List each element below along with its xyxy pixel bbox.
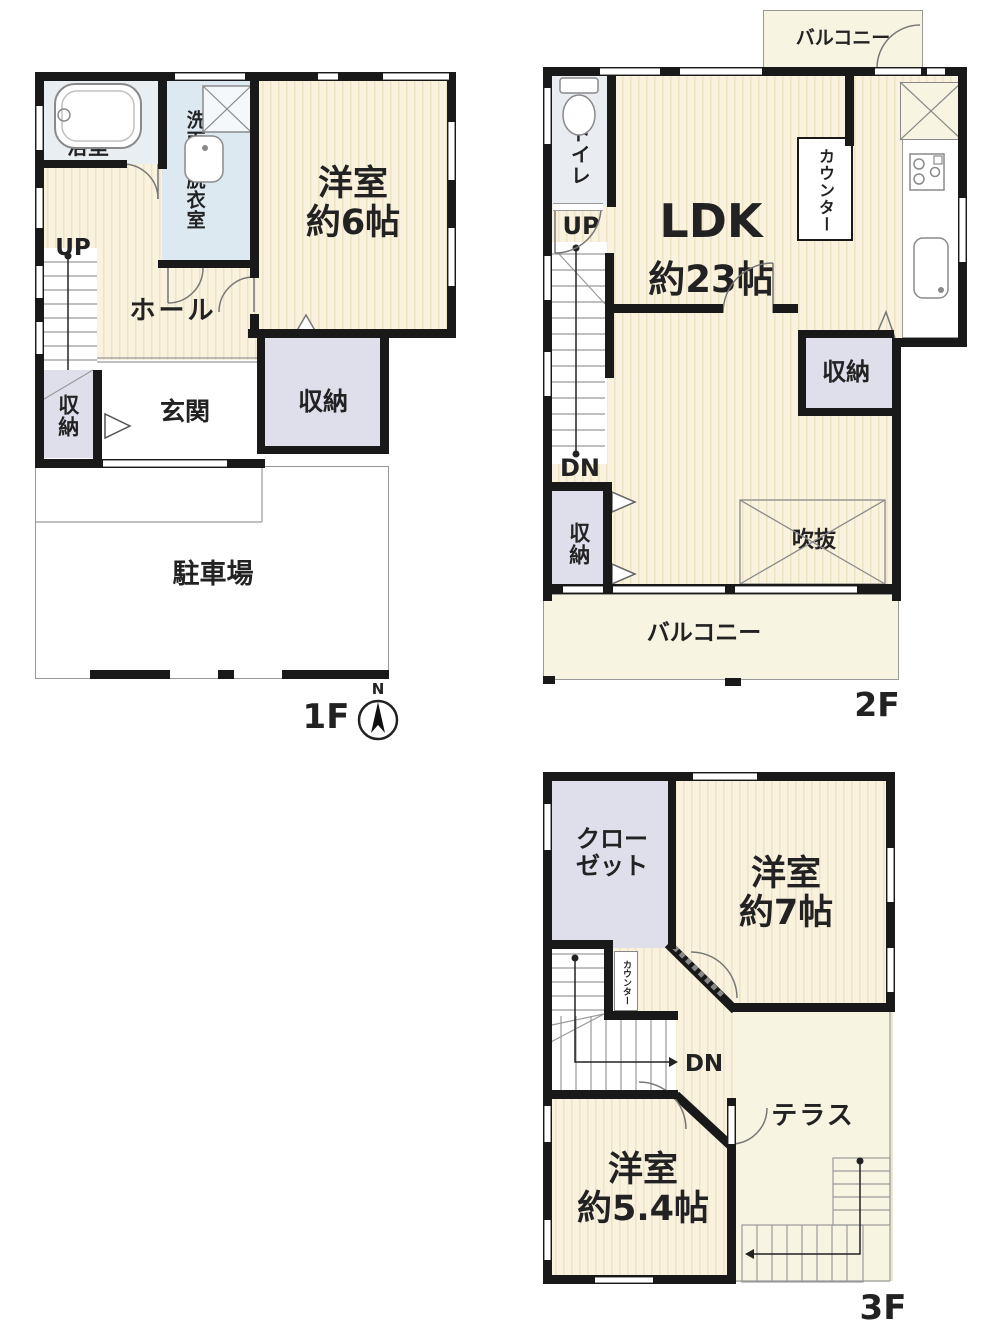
window-opening xyxy=(563,586,603,593)
window-opening xyxy=(544,88,551,144)
window-opening xyxy=(728,1106,735,1144)
window-opening xyxy=(36,188,43,228)
wall-segment xyxy=(668,778,676,949)
label-up-2f: UP xyxy=(557,214,605,238)
window-opening xyxy=(36,322,43,354)
window-opening xyxy=(544,352,551,396)
room-washroom xyxy=(162,76,258,266)
window-opening xyxy=(613,586,725,593)
label-floor-2f: 2F xyxy=(849,686,905,724)
label-closet: クローゼット xyxy=(557,822,667,884)
window-opening xyxy=(887,948,894,992)
window-opening xyxy=(875,68,921,75)
window-opening xyxy=(103,460,227,467)
label-ldk: LDK xyxy=(605,194,817,250)
label-storage-right-2f: 収納 xyxy=(802,358,890,386)
wall-segment xyxy=(257,446,389,454)
label-floor-3f: 3F xyxy=(855,1288,911,1328)
window-opening xyxy=(318,73,338,80)
window-opening xyxy=(36,106,43,150)
window-opening xyxy=(175,73,245,80)
label-dn-3f: DN xyxy=(679,1052,729,1078)
label-floor-1f: 1F xyxy=(301,698,351,736)
label-storage-left-1f: 収納 xyxy=(53,382,81,450)
label-bedroom54: 洋室約5.4帖 xyxy=(551,1142,735,1238)
label-entrance: 玄関 xyxy=(153,398,217,426)
wall-segment xyxy=(733,1003,895,1012)
floorplan-image: 浴室 洗面所脱衣室 洋室約6帖 UP ホール 収納 玄関 収納 駐車場 1F N xyxy=(0,0,1000,1333)
wall-segment xyxy=(892,338,967,347)
wall-segment xyxy=(798,330,894,338)
wall-segment xyxy=(218,670,234,679)
compass-icon xyxy=(359,701,397,739)
label-dn-2f: DN xyxy=(555,456,605,480)
window-opening xyxy=(544,1220,551,1260)
wall-segment xyxy=(447,72,456,338)
wall-segment xyxy=(605,253,614,378)
wall-segment xyxy=(798,408,894,416)
label-counter-2f: カウンター xyxy=(807,146,843,234)
wall-segment xyxy=(543,67,552,601)
window-opening xyxy=(595,1277,653,1283)
window-opening xyxy=(693,773,757,780)
label-storage-right-1f: 収納 xyxy=(287,388,359,416)
window-opening xyxy=(600,68,660,75)
label-balcony-bottom: バルコニー xyxy=(621,620,787,648)
kitchen-counter-strip xyxy=(902,138,960,338)
wall-segment xyxy=(609,304,723,313)
wall-segment xyxy=(380,329,389,454)
plan-3f: クローゼット 洋室約7帖 カウンター DN テラス 洋室約5.4帖 3F xyxy=(543,770,911,1333)
window-opening xyxy=(887,848,894,902)
window-opening xyxy=(448,228,455,286)
wall-segment xyxy=(603,482,612,594)
label-toilet: トイレ xyxy=(565,106,593,202)
wall-segment xyxy=(250,72,259,278)
wall-segment xyxy=(248,329,456,338)
label-washroom: 洗面所脱衣室 xyxy=(181,86,207,254)
label-balcony-top: バルコニー xyxy=(765,26,921,52)
wall-segment xyxy=(158,260,258,268)
wall-segment xyxy=(543,940,613,949)
plan-1f: 浴室 洗面所脱衣室 洋室約6帖 UP ホール 収納 玄関 収納 駐車場 1F N xyxy=(35,70,456,750)
wall-segment xyxy=(725,678,741,686)
stairs-2f xyxy=(547,242,607,464)
window-opening xyxy=(36,266,43,298)
stairs-3f-lower xyxy=(546,1014,676,1094)
wall-segment xyxy=(158,72,167,169)
wall-segment xyxy=(257,329,265,454)
label-storage-left-2f: 収納 xyxy=(559,508,597,580)
wall-segment xyxy=(35,160,127,168)
footprint-cut xyxy=(899,338,969,592)
window-opening xyxy=(544,804,551,850)
wall-segment xyxy=(604,1011,678,1020)
window-opening xyxy=(383,73,449,80)
wall-segment xyxy=(798,330,806,416)
kitchen-pan-box xyxy=(900,82,962,140)
wall-segment xyxy=(607,67,616,207)
window-opening xyxy=(735,586,857,593)
label-up-1f: UP xyxy=(51,238,95,260)
window-opening xyxy=(959,198,966,262)
label-terrace: テラス xyxy=(755,1102,871,1132)
window-opening xyxy=(448,122,455,180)
label-counter-3f: カウンター xyxy=(616,954,636,1010)
label-bedroom6: 洋室約6帖 xyxy=(273,162,433,246)
label-bath: 浴室 xyxy=(53,136,123,160)
window-opening xyxy=(544,256,551,300)
wall-segment xyxy=(845,76,854,146)
wall-segment xyxy=(773,304,798,313)
wall-segment xyxy=(93,370,102,467)
label-void: 吹抜 xyxy=(783,528,845,554)
label-ldk-size: 約23帖 xyxy=(600,256,822,304)
window-opening xyxy=(553,203,603,211)
window-opening xyxy=(927,68,945,75)
window-opening xyxy=(544,1106,551,1142)
stairs-1f xyxy=(39,248,97,378)
label-bedroom7: 洋室約7帖 xyxy=(695,848,877,940)
wall-segment xyxy=(543,676,555,684)
wall-segment xyxy=(90,670,170,679)
wall-segment xyxy=(604,940,613,1020)
wall-segment xyxy=(543,1090,678,1099)
compass-n-label: N xyxy=(369,680,387,698)
stairs-3f-upper xyxy=(546,948,605,1014)
window-opening xyxy=(680,68,762,75)
label-hall: ホール xyxy=(113,298,233,326)
plan-2f: バルコニー トイレ UP DN LDK 約23帖 カウンター 収納 収納 吹抜 … xyxy=(543,8,969,734)
room-terrace xyxy=(733,1012,891,1282)
wall-segment xyxy=(892,338,901,601)
label-parking: 駐車場 xyxy=(143,560,283,590)
wall-segment xyxy=(282,670,389,679)
